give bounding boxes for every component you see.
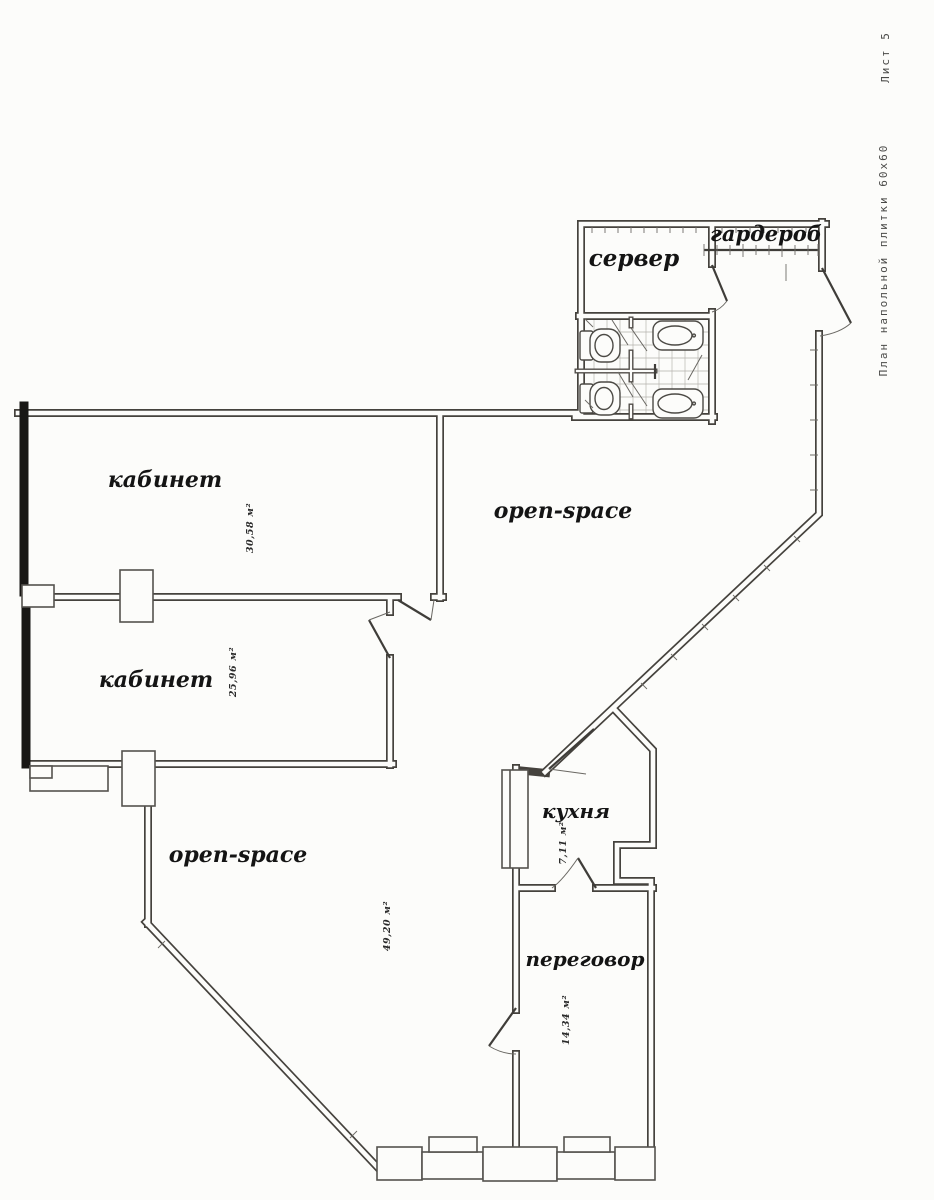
server-door-swing: [712, 265, 727, 312]
tile-layout-ticks: [158, 226, 818, 1138]
title-block: План напольной плитки 60х60 Лист 5: [877, 31, 892, 376]
room-label-server: сервер: [589, 245, 680, 272]
floor-plan-page: сервер гардероб кабинет 30,58 м² кабинет…: [0, 0, 934, 1200]
area-label-kitchen: 7,11 м²: [558, 821, 569, 864]
meeting-room-door-swing: [489, 1008, 516, 1054]
room-label-open-space-upper: open-space: [494, 498, 633, 524]
office-2-door-swing: [369, 612, 390, 658]
columns-and-pilasters: [22, 570, 528, 868]
toilet-icon: [580, 329, 620, 362]
sink-icon: [653, 389, 703, 418]
floor-plan-svg: сервер гардероб кабинет 30,58 м² кабинет…: [0, 0, 934, 1200]
area-label-open-space: 49,20 м²: [382, 901, 393, 951]
sheet-number-text: Лист 5: [879, 31, 892, 83]
sink-icon: [653, 321, 703, 350]
toilet-icon: [580, 382, 620, 415]
office-1-door-swing: [398, 600, 434, 620]
outer-walls: [18, 222, 826, 1172]
room-label-meeting-room: переговор: [525, 947, 644, 971]
area-label-office-1: 30,58 м²: [245, 503, 256, 553]
room-label-wardrobe: гардероб: [710, 221, 822, 246]
wardrobe-rod: [704, 244, 819, 281]
area-label-office-2: 25,96 м²: [228, 647, 239, 698]
plan-title-text: План напольной плитки 60х60: [877, 144, 890, 377]
entry-door-swing: [820, 268, 851, 336]
room-label-open-space-lower: open-space: [169, 842, 308, 868]
room-label-kitchen: кухня: [542, 799, 610, 823]
room-label-office-1: кабинет: [108, 467, 222, 493]
area-label-meeting-room: 14,34 м²: [561, 995, 572, 1045]
room-label-office-2: кабинет: [99, 667, 213, 693]
